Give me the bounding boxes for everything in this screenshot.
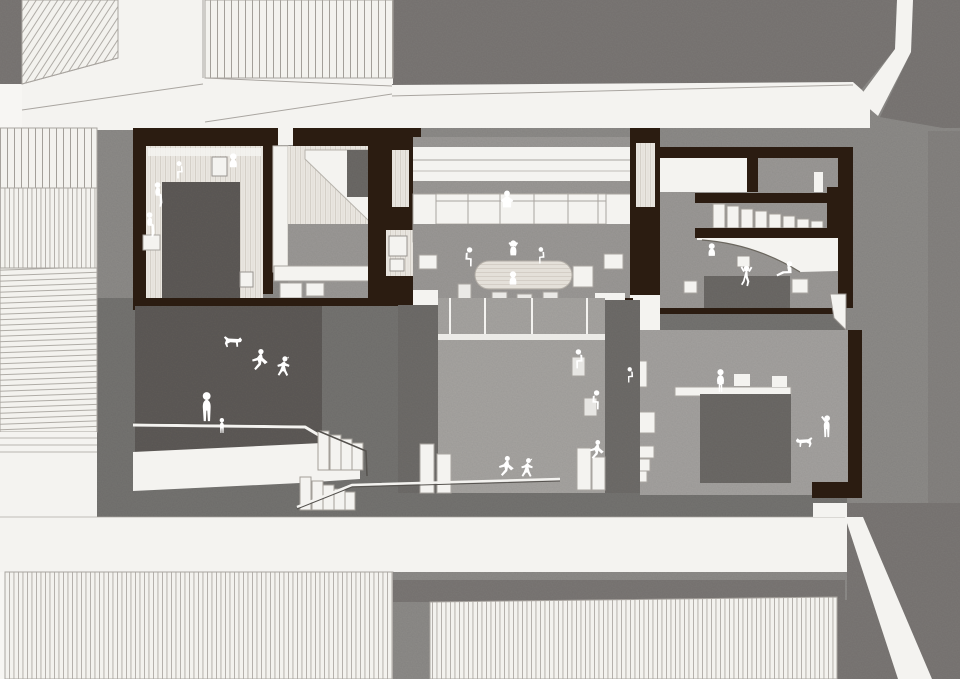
stair-tread-sw2 [345, 492, 355, 510]
stair-tread [713, 204, 725, 228]
wing-west-wood [636, 143, 655, 207]
sunken-lounge-pit [162, 182, 240, 306]
side-table [573, 266, 593, 287]
lounge-cushion [792, 279, 808, 293]
wall-kitchen-west-c [368, 230, 386, 302]
stool-white [143, 235, 160, 250]
cabinet-box-1 [389, 236, 407, 256]
court-chair-1 [572, 357, 585, 376]
stair-tread-sw [318, 431, 329, 470]
kitchen-strip-gray [413, 137, 633, 147]
stair-tread [783, 216, 795, 228]
cabinet-box-2 [390, 259, 404, 271]
wing-small-box [684, 281, 697, 293]
ground-right-shade [928, 131, 960, 522]
court-step-left-1 [420, 444, 434, 493]
scene-root [0, 0, 960, 679]
appliance-right [604, 254, 623, 269]
room-tatami-topstrip [148, 148, 261, 156]
counter-band [436, 194, 606, 224]
dining-chair-4 [458, 284, 471, 300]
walk-notch [813, 503, 847, 517]
wall-west [133, 146, 148, 298]
door-gap-north [278, 129, 293, 145]
wall-stair-top [695, 193, 840, 203]
wall-stair-right [827, 187, 840, 238]
wall-terrace-east [848, 330, 862, 498]
drawer-2 [306, 283, 324, 296]
terrace-rug [700, 394, 791, 483]
flank-right [605, 300, 640, 493]
court-sunken-left [135, 306, 322, 457]
wing-north-room [660, 158, 747, 192]
wall-stair-bottom [695, 228, 840, 238]
roof-west-1 [0, 128, 97, 188]
cabinet-tall-wood [392, 150, 409, 207]
dining-table [475, 261, 572, 289]
wall-wing-east [838, 158, 853, 308]
architectural-plan-canvas [0, 0, 960, 679]
south-walk-white [0, 517, 847, 572]
drawer-1 [280, 283, 302, 298]
side-box-2 [639, 412, 655, 433]
frame-small [240, 272, 253, 287]
stair-tread [741, 209, 753, 228]
shelf-box [737, 256, 750, 267]
frame-leaning [212, 157, 227, 176]
sectional-plan-drawing [0, 0, 960, 679]
court-chair-2 [584, 398, 597, 416]
appliance-left [419, 255, 437, 269]
roof-west-2 [0, 188, 97, 268]
bed2-rug [347, 150, 370, 197]
roof-bottom-center [430, 597, 837, 679]
court-step-right-1 [577, 448, 591, 490]
stair-tread [769, 214, 781, 228]
wing-glass-line [660, 308, 838, 314]
stair-tread [797, 219, 809, 228]
mullion-horizontal [438, 334, 605, 340]
wall-terrace-south [812, 482, 860, 498]
bed-dark [704, 276, 790, 310]
stair-tread [727, 206, 739, 228]
stair-tread [755, 211, 767, 228]
roof-west-3 [0, 268, 97, 432]
wing-north-floor [758, 158, 838, 192]
dark-block-nw [0, 0, 22, 84]
wing-north-slot [814, 172, 823, 192]
roof-bottom-left [5, 572, 393, 679]
wall-wing-stub [747, 158, 758, 192]
stair-tread [811, 221, 823, 228]
court-step-left-2 [437, 454, 451, 493]
terrace-cushion-1 [734, 374, 750, 386]
skylight-band [413, 147, 633, 181]
stair-tread-sw2 [312, 481, 323, 510]
roof-vstripe-top [205, 0, 393, 78]
wall-north-1 [133, 128, 278, 146]
terrace-cushion-2 [772, 376, 787, 387]
wall-divider-1 [263, 146, 273, 294]
kitchen-strip-gray-2 [413, 181, 633, 195]
court-step-right-2 [592, 457, 605, 490]
hill-mass-top [393, 0, 897, 96]
partition-white [273, 146, 288, 272]
wall-wing-north [660, 147, 853, 158]
